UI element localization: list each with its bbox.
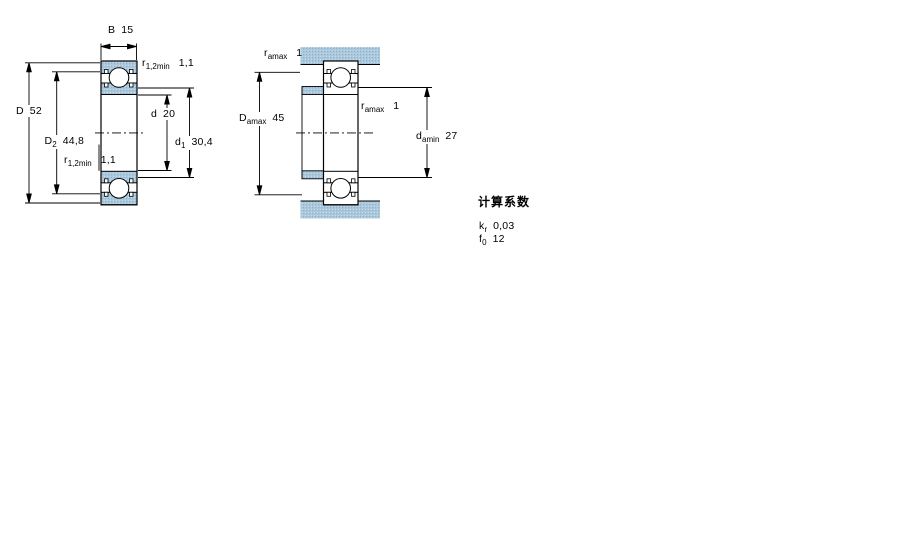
calc-factor-f0: f012 <box>479 233 505 247</box>
dim-subscript: amax <box>268 52 288 61</box>
dim-value: 1 <box>296 47 302 59</box>
dim-value: 52 <box>30 105 42 117</box>
factor-value: 0,03 <box>493 220 514 232</box>
dim-label-r12min-top: r1,2min1,1 <box>142 57 194 71</box>
ball-bottom <box>331 179 351 199</box>
dim-symbol: D <box>239 112 247 124</box>
dim-label-Damax: Damax45 <box>237 112 286 126</box>
dim-value: 44,8 <box>63 135 84 147</box>
calc-factors-title: 计算系数 <box>478 195 530 209</box>
dim-subscript: amax <box>247 117 267 126</box>
calc-factors-heading: 计算系数 <box>478 196 530 210</box>
dim-value: 30,4 <box>192 136 213 148</box>
dim-value: 15 <box>121 24 133 36</box>
dim-label-ramax-top: ramax1 <box>264 47 302 61</box>
dim-value: 20 <box>163 108 175 120</box>
dim-subscript: 2 <box>52 140 56 149</box>
dim-value: 1 <box>393 100 399 112</box>
dim-subscript: 1,2min <box>68 159 92 168</box>
ball-bottom <box>109 179 129 199</box>
factor-subscript: 0 <box>482 238 486 247</box>
calc-factor-kr: kr0,03 <box>479 220 514 234</box>
dim-value: 1,1 <box>179 57 194 69</box>
fig2-mounted-section <box>296 47 380 219</box>
dim-label-damin: damin27 <box>414 130 459 144</box>
ball-top <box>331 68 351 88</box>
dim-symbol: d <box>151 108 157 120</box>
dim-label-d1: d130,4 <box>173 136 215 150</box>
dim-label-width-B: B15 <box>108 24 133 36</box>
dim-value: 1,1 <box>101 154 116 166</box>
ball-top <box>109 68 129 88</box>
technical-linework <box>0 0 900 560</box>
dim-symbol: B <box>108 24 115 36</box>
dim-subscript: 1,2min <box>146 62 170 71</box>
dim-subscript: amin <box>422 135 439 144</box>
dim-label-r12min-bottom: r1,2min1,1 <box>64 154 116 168</box>
dim-label-D: D52 <box>14 105 44 117</box>
dim-value: 27 <box>445 130 457 142</box>
dim-subscript: 1 <box>181 141 185 150</box>
dim-value: 45 <box>272 112 284 124</box>
bearing-dimension-drawing: B15 r1,2min1,1 D52 D244,8 r1,2min1,1 d20… <box>0 0 900 560</box>
fig1-bearing-section <box>95 61 143 205</box>
dim-label-bore-d: d20 <box>149 108 177 120</box>
dim-label-D2: D244,8 <box>43 135 87 149</box>
dim-subscript: amax <box>365 105 385 114</box>
factor-value: 12 <box>493 233 505 245</box>
dim-label-ramax-right: ramax1 <box>361 100 399 114</box>
dim-symbol: D <box>16 105 24 117</box>
